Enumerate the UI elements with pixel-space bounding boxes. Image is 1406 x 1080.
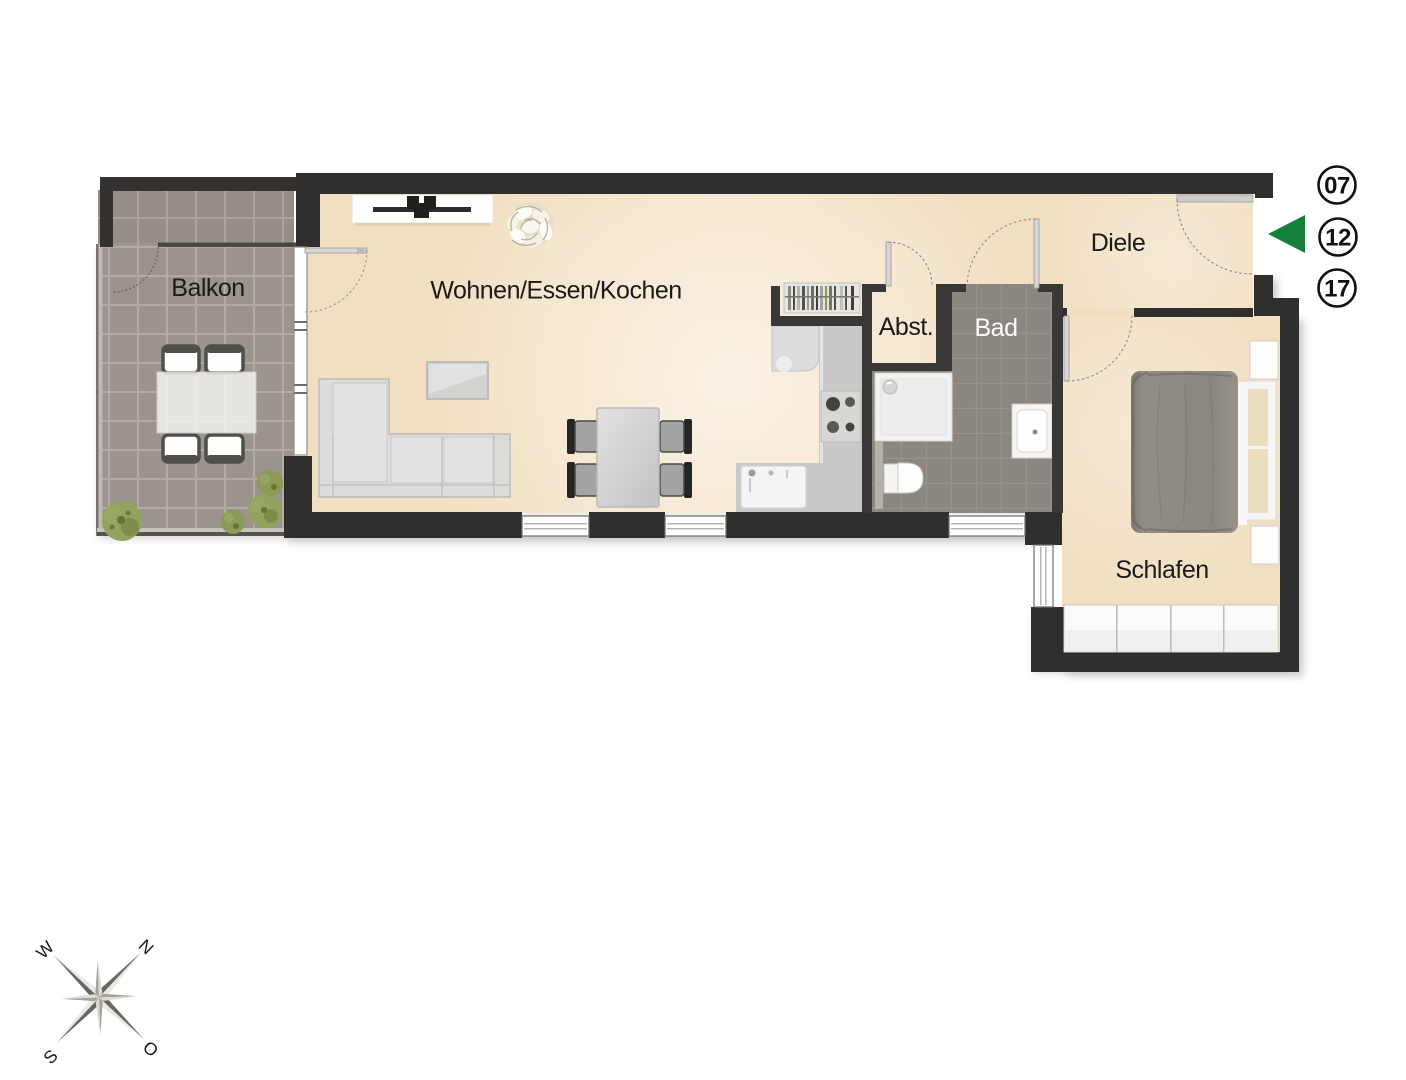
svg-text:Abst.: Abst. [879, 313, 933, 341]
svg-text:12: 12 [1325, 225, 1351, 252]
svg-text:07: 07 [1324, 173, 1350, 200]
svg-text:17: 17 [1324, 276, 1350, 303]
svg-text:Balkon: Balkon [171, 274, 244, 302]
svg-text:Wohnen/Essen/Kochen: Wohnen/Essen/Kochen [430, 277, 681, 305]
svg-text:Bad: Bad [975, 314, 1018, 342]
svg-text:Schlafen: Schlafen [1115, 556, 1208, 584]
svg-text:Diele: Diele [1091, 229, 1145, 257]
